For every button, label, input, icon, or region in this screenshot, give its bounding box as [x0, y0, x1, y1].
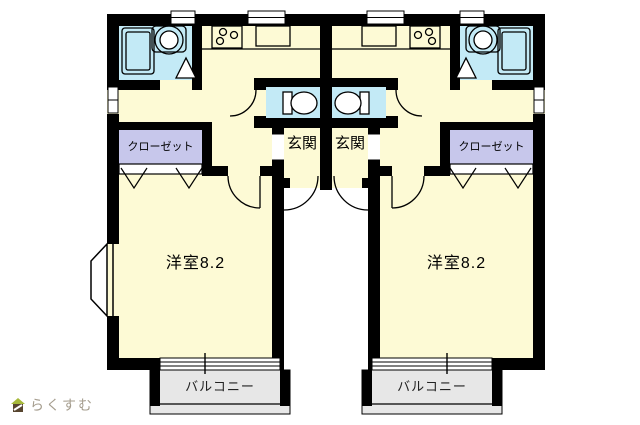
entrance-label-right: 玄関 [332, 130, 368, 156]
balcony-label-right: バルコニー [372, 372, 492, 400]
closet-label-right: クローゼット [450, 130, 533, 164]
house-icon [10, 397, 26, 413]
toilet-icon-left [283, 92, 317, 114]
window-icon [171, 11, 195, 24]
toilet-icon-right [335, 92, 369, 114]
site-logo-text: らくすむ [30, 395, 94, 415]
floor-plan-drawing [0, 0, 640, 425]
wall-center [320, 14, 332, 190]
entrance-label-left: 玄関 [284, 130, 320, 156]
window-icon [248, 11, 285, 24]
site-logo: らくすむ [10, 395, 94, 415]
window-icon [108, 87, 118, 113]
window-icon [367, 11, 404, 24]
floor-plan-canvas: クローゼット クローゼット 玄関 玄関 洋室8.2 洋室8.2 バルコニー バル… [0, 0, 640, 425]
closet-label-left: クローゼット [119, 130, 202, 164]
window-icon [534, 87, 544, 113]
room-label-right: 洋室8.2 [380, 176, 533, 351]
window-icon [460, 11, 484, 24]
balcony-label-left: バルコニー [160, 372, 280, 400]
room-label-left: 洋室8.2 [119, 176, 272, 351]
